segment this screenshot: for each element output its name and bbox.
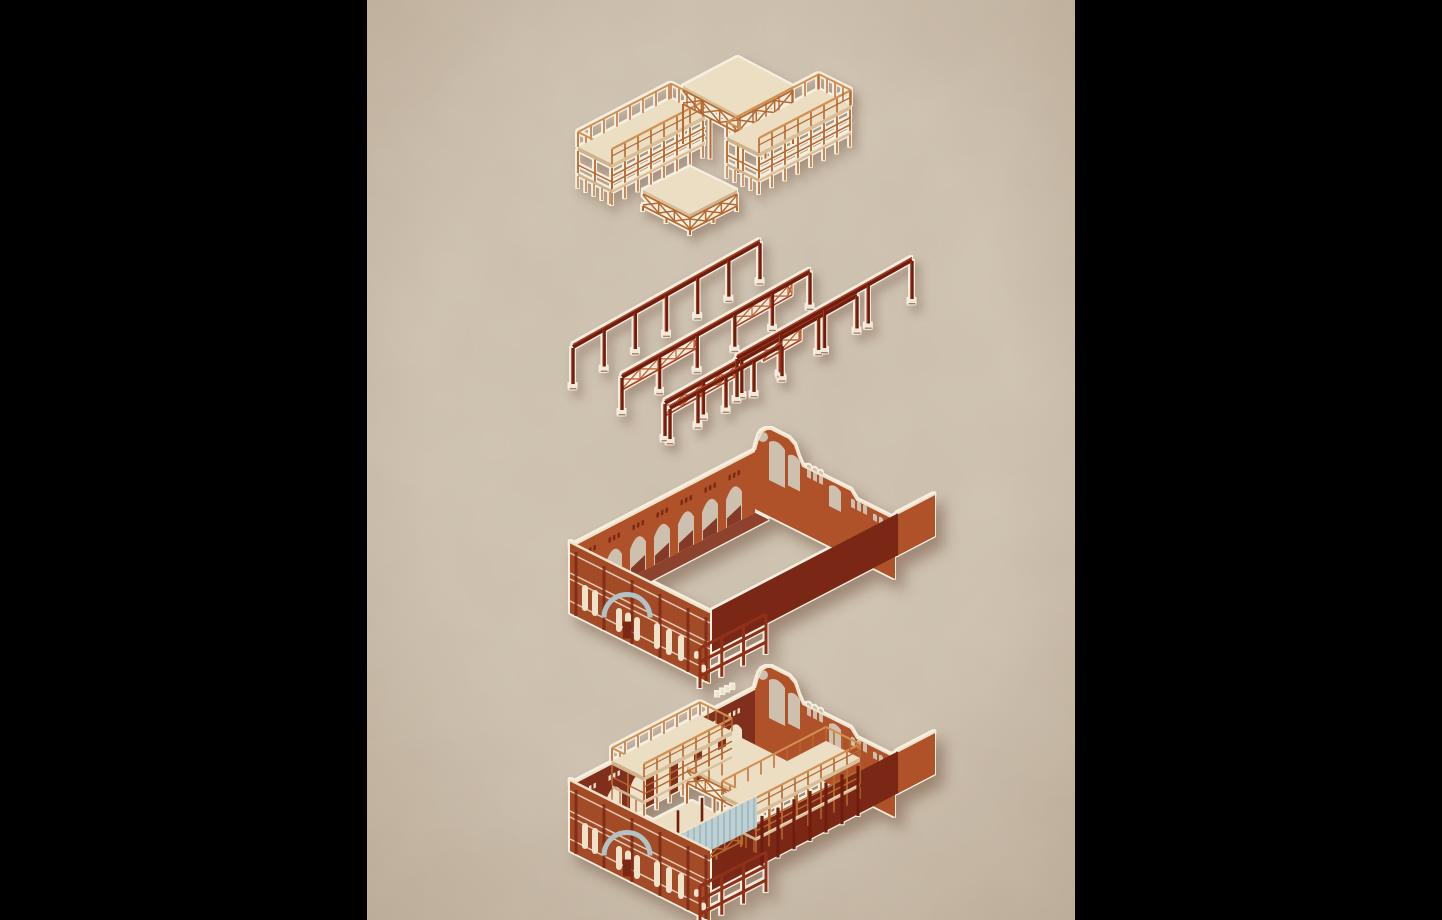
exploded-axonometric-drawing xyxy=(367,0,1075,920)
poster-panel xyxy=(367,0,1075,920)
letterbox-left xyxy=(0,0,367,920)
letterbox-right xyxy=(1075,0,1442,920)
